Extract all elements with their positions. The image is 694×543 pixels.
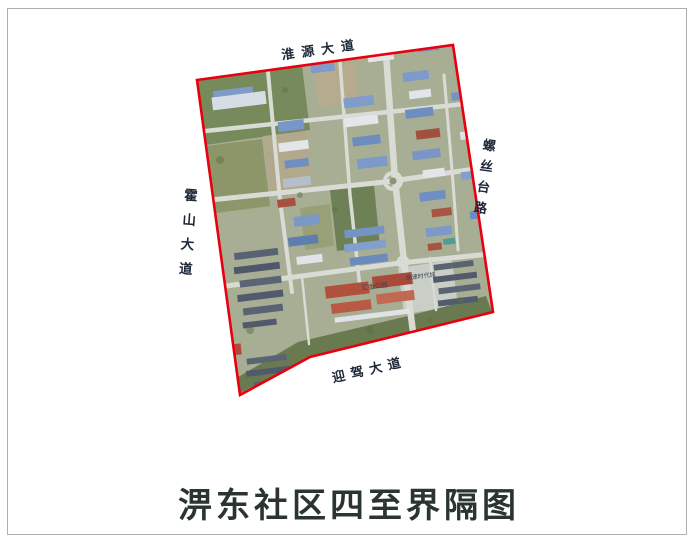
page-title: 淠东社区四至界隔图 [0,478,694,527]
satellite-map: 汇金公园 高速时代城 [0,0,694,543]
roundabout-island [390,178,397,185]
boundary-map-page: 汇金公园 高速时代城 淮源大道 螺丝台路 霍山大道 迎驾大道 淠东社区四至界隔图 [0,0,694,543]
